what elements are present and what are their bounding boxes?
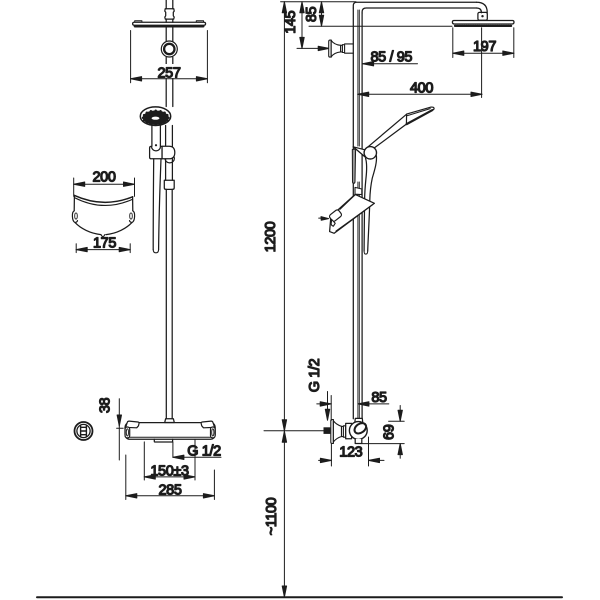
svg-text:85 / 95: 85 / 95 xyxy=(371,50,413,66)
svg-text:175: 175 xyxy=(93,236,116,252)
svg-text:38: 38 xyxy=(98,398,114,414)
svg-text:150±3: 150±3 xyxy=(150,463,189,479)
svg-text:G 1/2: G 1/2 xyxy=(187,444,221,460)
svg-text:285: 285 xyxy=(159,483,182,499)
svg-text:200: 200 xyxy=(93,170,116,186)
svg-text:197: 197 xyxy=(473,39,496,55)
svg-text:69: 69 xyxy=(382,424,398,440)
svg-text:85: 85 xyxy=(371,390,387,406)
svg-text:G 1/2: G 1/2 xyxy=(307,358,323,392)
svg-text:~1100: ~1100 xyxy=(264,497,280,535)
svg-text:145: 145 xyxy=(283,10,299,33)
svg-text:257: 257 xyxy=(158,66,181,82)
svg-text:1200: 1200 xyxy=(263,221,279,252)
svg-text:85: 85 xyxy=(304,7,320,23)
svg-text:123: 123 xyxy=(339,445,362,461)
svg-text:400: 400 xyxy=(410,81,433,97)
